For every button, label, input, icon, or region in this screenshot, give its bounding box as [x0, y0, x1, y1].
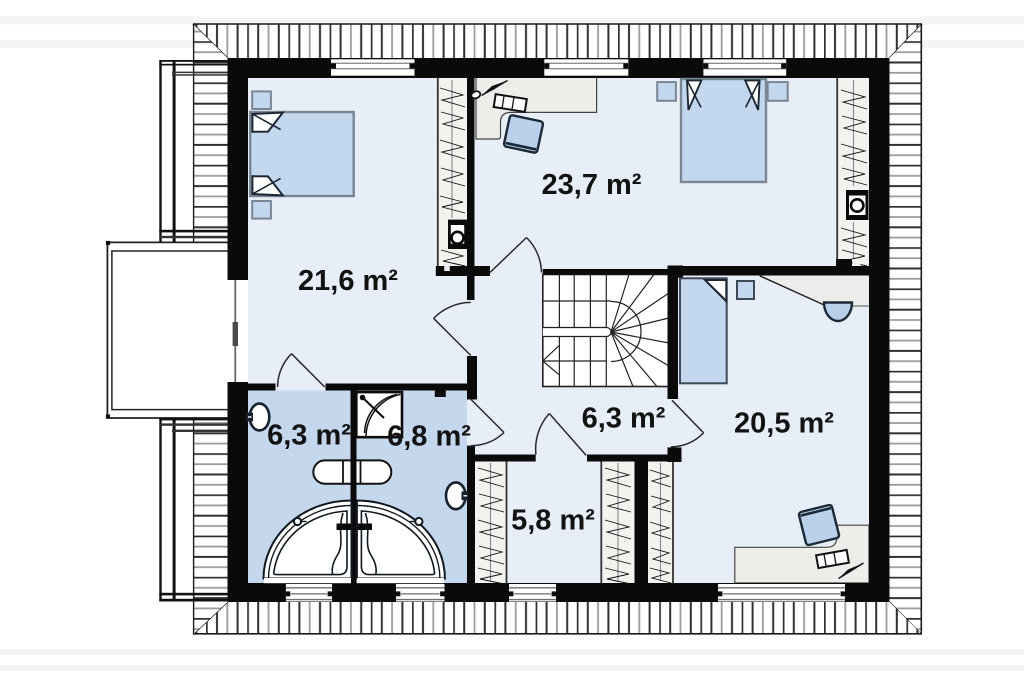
- svg-text:6,3 m²: 6,3 m²: [582, 403, 666, 435]
- svg-text:6,3 m²: 6,3 m²: [267, 420, 351, 452]
- svg-text:20,5 m²: 20,5 m²: [734, 408, 834, 440]
- svg-text:21,6 m²: 21,6 m²: [298, 265, 398, 297]
- svg-text:5,8 m²: 5,8 m²: [511, 505, 595, 537]
- svg-text:6,8 m²: 6,8 m²: [387, 421, 471, 453]
- svg-text:23,7 m²: 23,7 m²: [542, 169, 642, 201]
